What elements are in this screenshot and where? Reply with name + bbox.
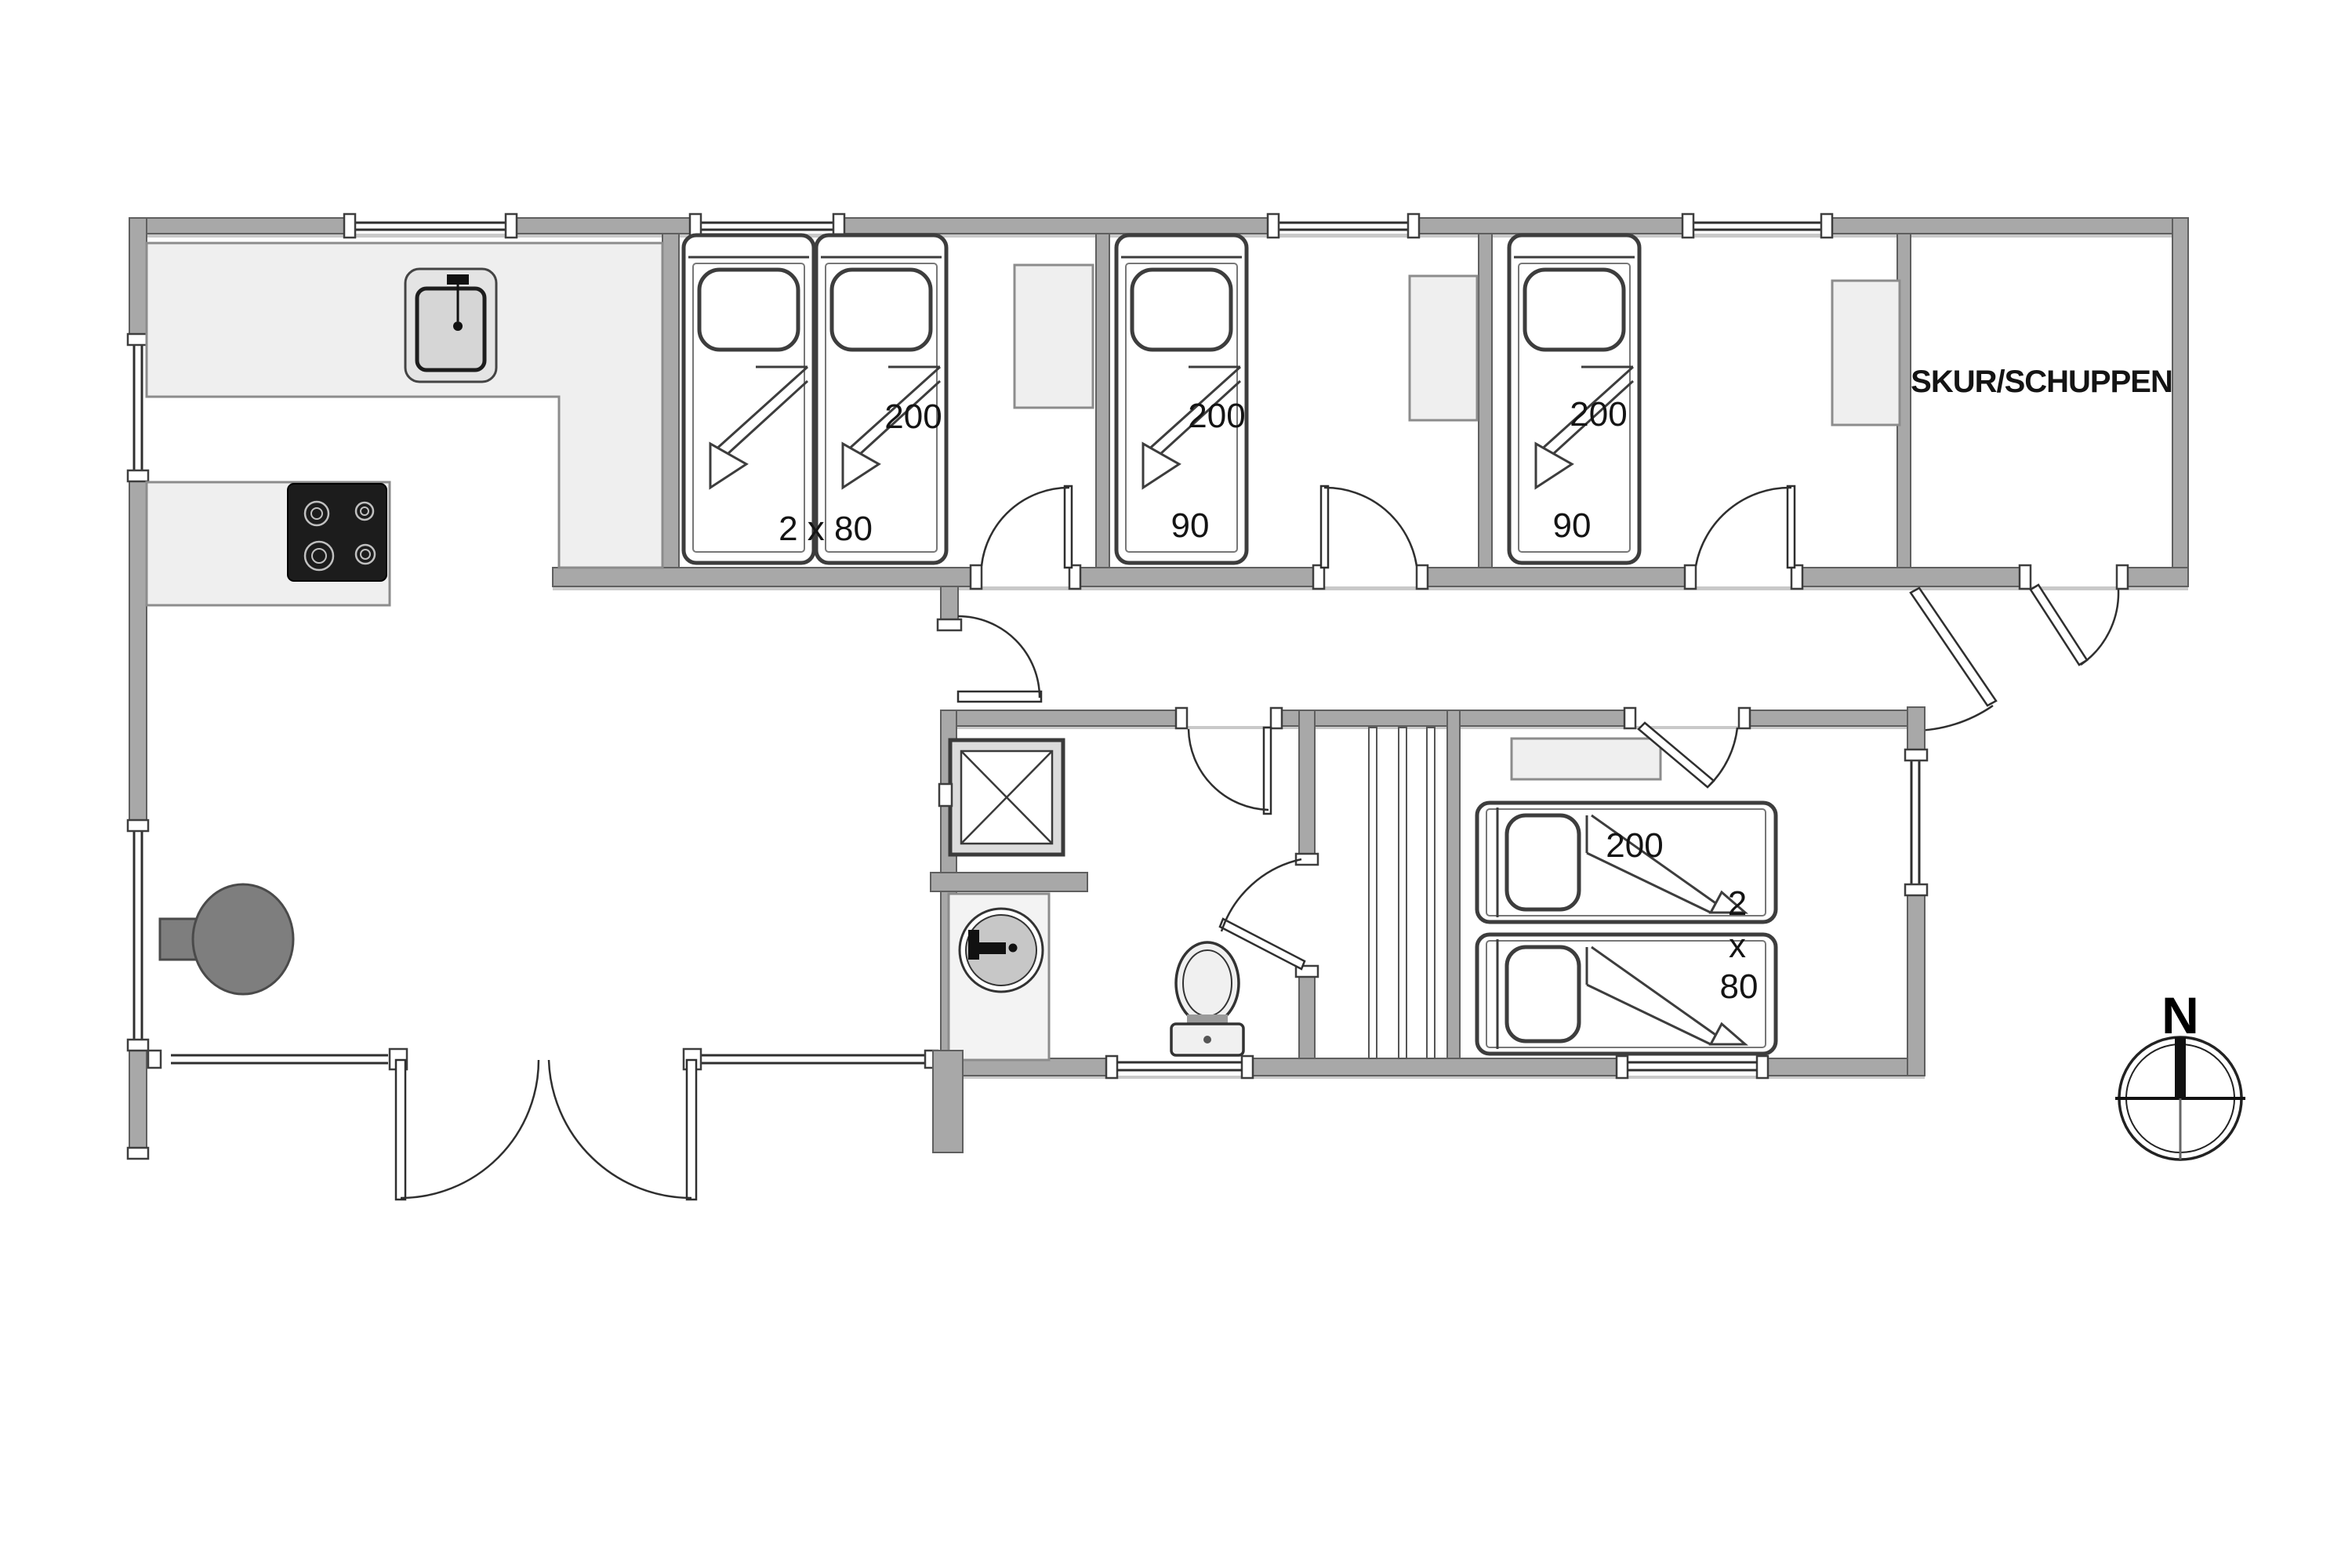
- door-leaf: [1788, 486, 1795, 568]
- shed-label: SKUR/SCHUPPEN: [1911, 365, 2172, 399]
- corridor-door-leaf: [958, 691, 1041, 702]
- bathroom-sink: [949, 894, 1049, 1060]
- living-room: [148, 884, 963, 1200]
- bedroom2-bed-size-label: 90: [1171, 506, 1210, 545]
- floor-plan-canvas: 200 2 x 80 200 90 200 90 SKUR/SCHUPPEN: [0, 0, 2352, 1568]
- compass: N: [2115, 986, 2245, 1160]
- shower: [939, 740, 1063, 855]
- corridor-exit-door-swing: [1914, 706, 1993, 731]
- window-bathroom-south: [1117, 1062, 1242, 1070]
- toilet: [1171, 942, 1243, 1055]
- window-south-east: [701, 1051, 938, 1068]
- bathroom-partition: [931, 873, 1087, 891]
- wardrobe: [1832, 281, 1900, 425]
- bedroom-2: 200 90: [1116, 235, 1477, 568]
- wardrobe: [1410, 276, 1477, 420]
- bedroom4-bed-length-label: 200: [1606, 826, 1663, 865]
- corridor-door-swing: [958, 616, 1040, 698]
- shed: SKUR/SCHUPPEN: [1911, 365, 2172, 665]
- door-swing: [1696, 488, 1791, 566]
- window-south-west: [148, 1051, 388, 1068]
- bedroom3-bed-size-label: 90: [1553, 506, 1592, 545]
- kitchen-sink: [405, 269, 496, 382]
- bedroom1-bed-size-label: 2 x 80: [779, 510, 873, 548]
- door-leaf: [1321, 486, 1328, 568]
- window-bedroom4-south: [1628, 1062, 1757, 1070]
- bathroom: [931, 728, 1305, 1060]
- wood-stove: [160, 884, 293, 994]
- bathroom-inner-door-swing: [1221, 859, 1301, 931]
- bathroom-door-swing: [1189, 729, 1269, 810]
- corridor: [938, 586, 1996, 731]
- wardrobe: [1014, 265, 1093, 408]
- bathroom-door-leaf: [1264, 728, 1271, 814]
- shed-door-leaf: [2031, 585, 2087, 665]
- bedroom-3: 200 90: [1509, 235, 1900, 568]
- bedroom-4: 200 2 x 80: [1477, 723, 1776, 1054]
- faucet-icon: [968, 930, 979, 960]
- compass-north-label: N: [2161, 986, 2199, 1044]
- hall-closet: [1369, 728, 1435, 1058]
- bedroom4-bed-size-label-2: x: [1729, 927, 1746, 965]
- bedroom4-bed-size-label-1: 2: [1728, 884, 1747, 923]
- bedroom1-bed-length-label: 200: [884, 397, 942, 436]
- corridor-exit-door-leaf: [1911, 588, 1996, 706]
- shelf: [1512, 739, 1661, 779]
- bedroom-1: 200 2 x 80: [684, 235, 1093, 568]
- shed-door-swing: [2081, 590, 2118, 665]
- kitchen-stove: [288, 484, 387, 581]
- window-bedroom4-east: [1905, 750, 1927, 895]
- bedroom3-bed-length-label: 200: [1570, 395, 1627, 434]
- shower-valve-icon: [939, 784, 952, 806]
- kitchen: [147, 243, 662, 605]
- door-swing: [982, 488, 1069, 566]
- north-needle-icon: [2175, 1037, 2186, 1098]
- door-swing: [1709, 728, 1737, 786]
- bedroom4-bed-size-label-3: 80: [1720, 967, 1759, 1006]
- french-doors: [390, 1049, 701, 1200]
- wall-post: [933, 1051, 963, 1152]
- window-west-kitchen: [128, 334, 148, 481]
- door-swing: [1324, 488, 1417, 566]
- door-leaf: [1065, 486, 1072, 568]
- faucet-icon: [447, 274, 469, 285]
- bedroom2-bed-length-label: 200: [1188, 397, 1245, 435]
- corridor-wall-stub: [941, 586, 958, 622]
